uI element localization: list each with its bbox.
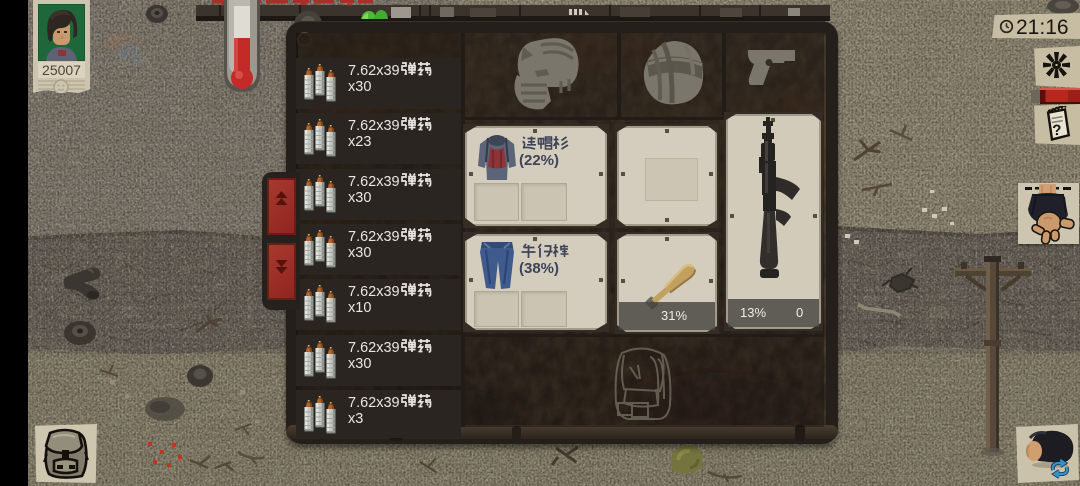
svg-text:?: ? (1052, 122, 1062, 140)
